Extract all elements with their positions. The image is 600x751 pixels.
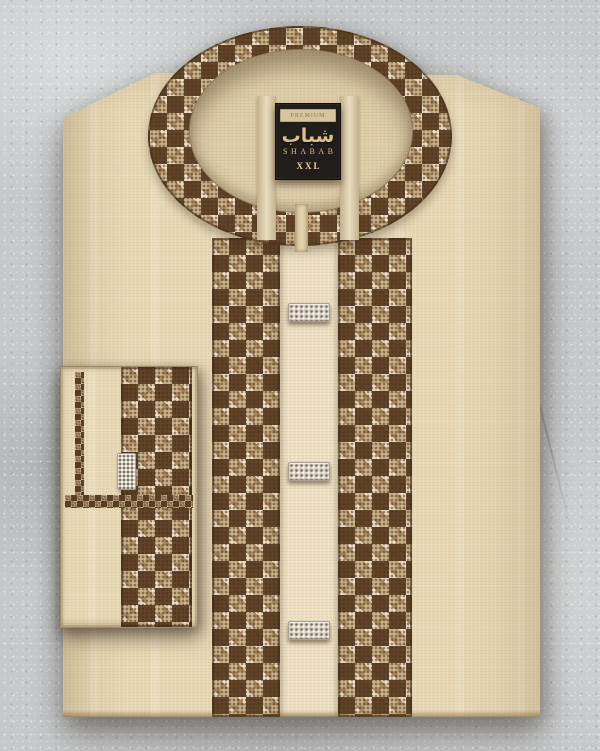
placket-button-3 — [288, 621, 330, 640]
brand-label: PREMIUM شباب SHABAB XXL — [275, 103, 341, 180]
brand-calligraphy: شباب — [282, 126, 335, 147]
brand-name: SHABAB — [280, 147, 337, 156]
label-hanging-strip-left — [257, 96, 276, 240]
hem-shadow — [63, 710, 540, 717]
placket-button-1 — [288, 303, 330, 322]
label-hanging-strip-right — [340, 96, 359, 240]
placket-button-2 — [288, 462, 330, 481]
label-quality-line: PREMIUM — [280, 109, 336, 122]
cuff-fabric — [60, 366, 198, 628]
placket-embroidery-left — [212, 238, 280, 717]
sleeve-cuff-detail — [60, 366, 198, 628]
cuff-button — [117, 453, 136, 490]
product-photo: PREMIUM شباب SHABAB XXL — [0, 0, 600, 751]
placket-embroidery-right — [338, 238, 412, 717]
cuff-seam-embroidery — [65, 495, 193, 508]
cuff-trim-line — [75, 372, 84, 496]
collar-front-slit — [295, 204, 308, 252]
size-tag: XXL — [294, 161, 321, 171]
